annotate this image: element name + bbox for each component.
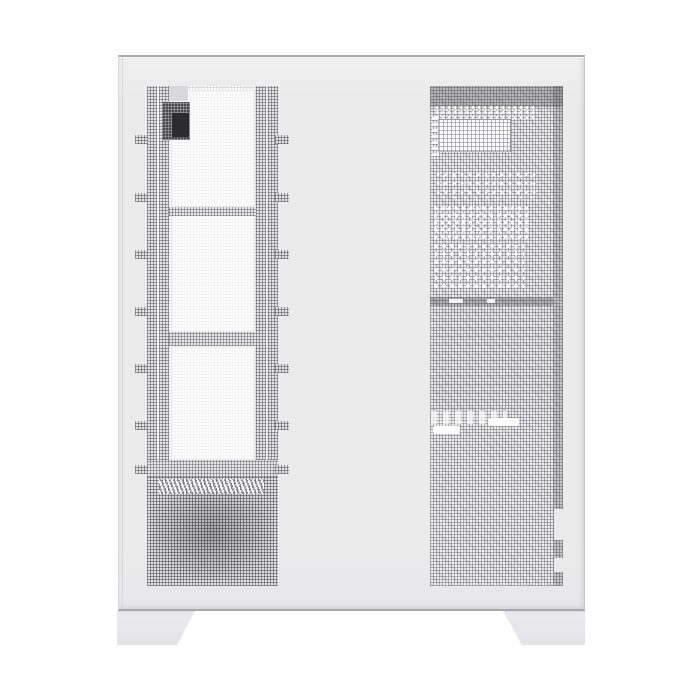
mounting-tab-left-2 <box>135 193 148 202</box>
case-foot-right <box>503 611 585 645</box>
mounting-tab-left-3 <box>135 250 148 259</box>
edge-latch-notch-lower <box>554 558 563 572</box>
top-bracket-tab <box>169 86 188 101</box>
component-cluster-lower <box>432 242 524 289</box>
mounting-tab-left-1 <box>135 135 148 144</box>
psu-shadow <box>151 493 274 580</box>
mounting-tab-right-1 <box>275 135 289 144</box>
front-mesh-panel <box>430 86 563 586</box>
mesh-crossbar-3 <box>147 460 278 477</box>
cable-slot-right <box>488 418 519 426</box>
connector-module-core <box>172 113 189 137</box>
mesh-top-band <box>430 86 563 107</box>
mesh-crossbar-2 <box>169 332 256 346</box>
divider-band <box>430 297 553 306</box>
case-foot-left <box>117 611 195 645</box>
fan-cutout-middle <box>171 215 254 332</box>
vent-dot-row-top <box>434 105 534 119</box>
psu-vent-grille <box>159 479 264 494</box>
mounting-tab-right-7 <box>275 465 289 474</box>
product-photo-scene <box>0 0 700 700</box>
fan-cutout-bottom <box>171 347 254 460</box>
mesh-row-banding <box>430 306 553 410</box>
mounting-tab-left-6 <box>135 421 148 430</box>
psu-mesh-block <box>147 477 278 586</box>
mounting-tab-left-4 <box>135 307 148 316</box>
side-panel-seam <box>122 57 123 609</box>
mounting-tab-right-3 <box>275 250 289 259</box>
divider-dash-1 <box>449 299 463 303</box>
io-perforated-block <box>438 119 511 152</box>
mounting-tab-right-2 <box>275 193 289 202</box>
mounting-tab-right-5 <box>275 364 289 373</box>
divider-dash-2 <box>487 299 495 303</box>
component-cluster-upper <box>432 205 529 239</box>
cable-slot-left <box>433 426 460 434</box>
connector-module <box>162 102 190 140</box>
mesh-crossbar-1 <box>169 207 256 216</box>
mounting-tab-right-6 <box>275 421 289 430</box>
edge-latch-notch-upper <box>554 509 563 540</box>
mounting-tab-left-5 <box>135 364 148 373</box>
fan-rail-mesh-panel <box>147 86 278 586</box>
component-dot-row <box>434 170 538 199</box>
pc-case-body <box>118 55 585 611</box>
mounting-tab-right-4 <box>275 307 289 316</box>
mounting-tab-left-7 <box>135 465 148 474</box>
